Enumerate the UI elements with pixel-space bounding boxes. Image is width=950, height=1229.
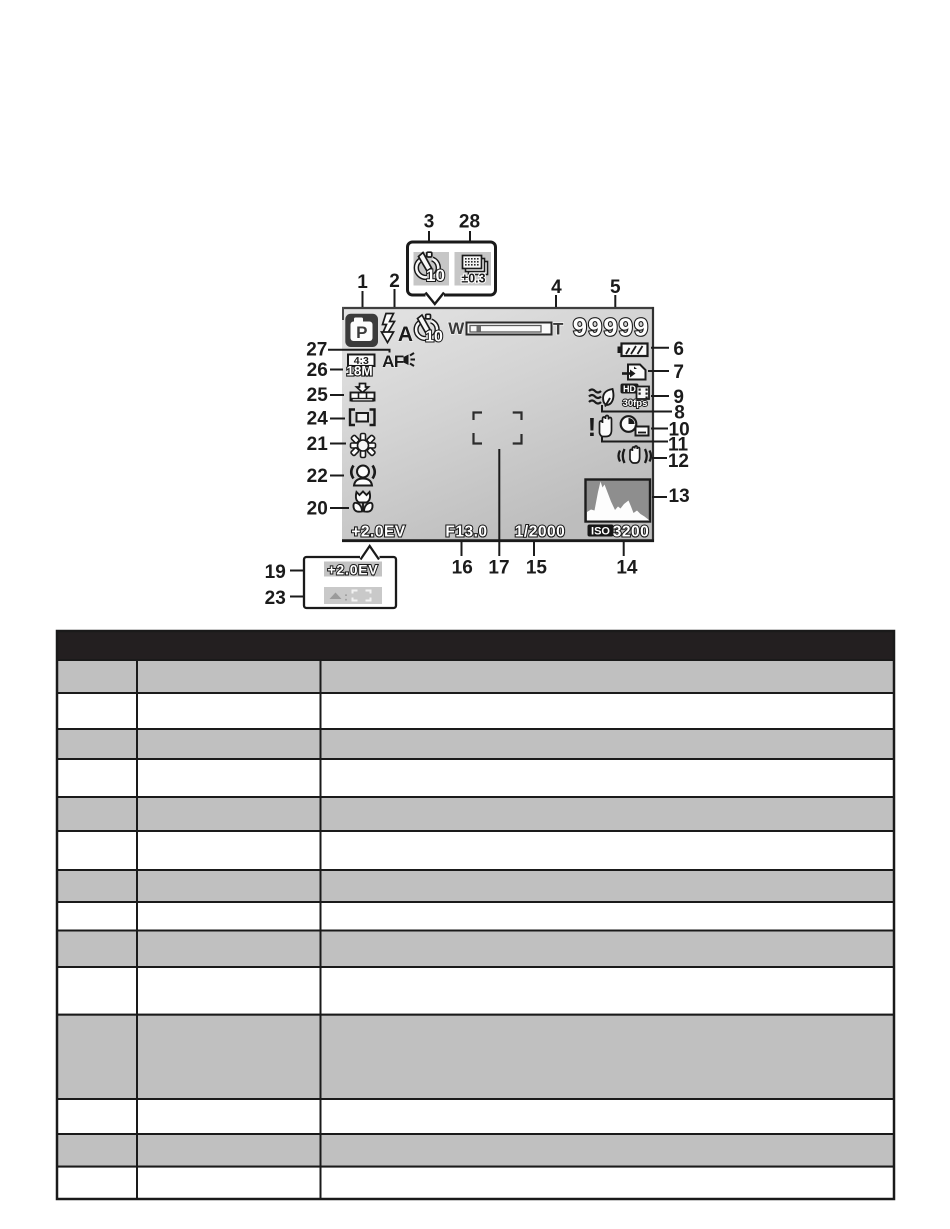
- svg-text:24: 24: [307, 409, 329, 430]
- svg-text:10: 10: [425, 329, 443, 346]
- svg-text:25: 25: [307, 385, 329, 406]
- svg-text:16: 16: [452, 558, 473, 579]
- svg-text:12: 12: [668, 451, 689, 472]
- svg-text:20: 20: [307, 499, 328, 520]
- svg-text:22: 22: [307, 466, 328, 487]
- svg-text:A: A: [398, 323, 413, 346]
- svg-text:3200: 3200: [613, 524, 649, 541]
- svg-text:30fps: 30fps: [623, 398, 648, 409]
- svg-text:28: 28: [459, 212, 480, 233]
- svg-text:5: 5: [610, 277, 621, 298]
- svg-text:P: P: [356, 323, 367, 342]
- svg-text:27: 27: [306, 339, 327, 360]
- svg-text:1/2000: 1/2000: [515, 524, 565, 541]
- svg-text:T: T: [553, 320, 564, 339]
- svg-text:19: 19: [265, 562, 286, 583]
- svg-text:!: !: [588, 412, 597, 442]
- svg-text:W: W: [448, 319, 465, 338]
- svg-text::: :: [344, 590, 348, 604]
- svg-text:26: 26: [307, 360, 328, 381]
- svg-text:1: 1: [357, 272, 368, 293]
- svg-text:99999: 99999: [572, 315, 649, 344]
- svg-text:21: 21: [307, 434, 329, 455]
- svg-text:10: 10: [426, 266, 445, 285]
- svg-text:+2.0EV: +2.0EV: [351, 524, 405, 541]
- svg-text:HD: HD: [623, 384, 636, 394]
- svg-text:4: 4: [551, 277, 562, 298]
- svg-text:±0.3: ±0.3: [461, 272, 485, 286]
- svg-text:13: 13: [669, 486, 690, 507]
- svg-text:23: 23: [265, 588, 286, 609]
- svg-text:17: 17: [488, 558, 509, 579]
- svg-text:3: 3: [424, 212, 435, 233]
- svg-text:F13.0: F13.0: [445, 524, 487, 541]
- svg-text:6: 6: [673, 339, 684, 360]
- svg-text:15: 15: [526, 558, 548, 579]
- svg-text:AF: AF: [382, 352, 404, 371]
- svg-text:ISO: ISO: [591, 526, 610, 538]
- svg-text:18M: 18M: [346, 364, 372, 379]
- svg-text:7: 7: [673, 362, 684, 383]
- svg-text:+2.0EV: +2.0EV: [327, 562, 378, 578]
- svg-text:2: 2: [389, 271, 400, 292]
- svg-text:14: 14: [616, 558, 638, 579]
